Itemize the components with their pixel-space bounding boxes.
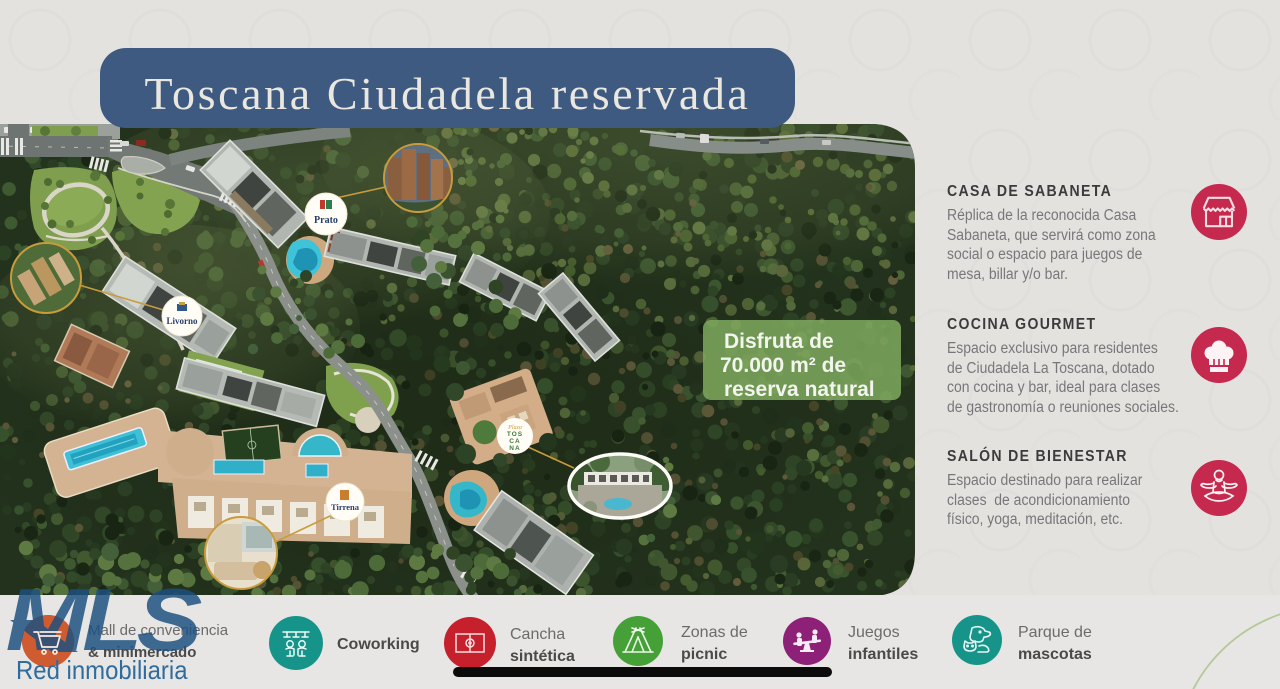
svg-text:NA: NA (509, 445, 520, 452)
svg-text:70.000 m² de: 70.000 m² de (720, 354, 846, 377)
svg-text:Livorno: Livorno (166, 316, 198, 326)
svg-text:Disfruta de: Disfruta de (724, 330, 834, 353)
svg-text:Prato: Prato (314, 215, 338, 226)
svg-text:CA: CA (509, 438, 520, 445)
svg-text:Tirrena: Tirrena (331, 502, 360, 512)
svg-text:reserva natural: reserva natural (724, 378, 875, 401)
svg-text:TOS: TOS (507, 431, 523, 438)
